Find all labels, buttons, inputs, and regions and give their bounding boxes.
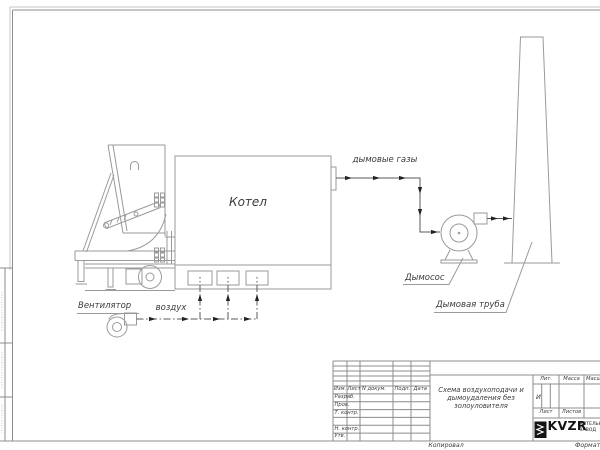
- boiler-label: Котел: [229, 196, 267, 208]
- doc-title-line-1: Схема воздухоподачи и: [438, 387, 524, 394]
- flue-outlet-stub: [331, 167, 336, 190]
- tb-sheets-label: Листов: [562, 410, 581, 415]
- tb-lit-value: И: [536, 394, 541, 401]
- boiler-body: [175, 156, 331, 265]
- air-label: воздух: [156, 304, 187, 313]
- flue-gas-line: [336, 176, 440, 234]
- tb-row-prov: Пров.: [335, 403, 350, 408]
- doc-title-line-3: золоуловителя: [454, 403, 508, 410]
- tb-row-utv: Утв.: [335, 434, 346, 439]
- tb-header-ndokum: N докум.: [362, 387, 386, 392]
- boiler: [175, 156, 336, 289]
- side-stamp: [0, 268, 13, 441]
- hopper-feeder: [75, 145, 175, 291]
- tb-mass-header: Масса: [563, 377, 580, 382]
- engineering-drawing: [0, 0, 600, 450]
- tb-sheet-label: Лист: [539, 410, 552, 415]
- tb-header-data: Дата: [414, 387, 427, 392]
- bolt-cluster-lower: [155, 248, 165, 262]
- fan-symbol: [77, 313, 139, 337]
- doc-title-line-2: дымоудаления без: [447, 395, 515, 402]
- chimney-label: Дымовая труба: [436, 301, 505, 310]
- hopper-vent-mark: [131, 162, 139, 171]
- company-logo-mark: [535, 422, 547, 439]
- logo-caption-line-1: КОТЕЛЬНЫЙ: [580, 423, 600, 428]
- fan-label: Вентилятор: [78, 302, 131, 311]
- tb-lit-header: Лит.: [540, 377, 552, 382]
- tb-scale-header: Масштаб: [586, 377, 600, 382]
- logo-caption-line-2: ЗАВОД: [580, 429, 596, 434]
- tb-row-tkontr: Т. контр.: [335, 411, 359, 416]
- tb-header-podp: Подп.: [395, 387, 411, 392]
- format-label: Формат: [575, 443, 600, 449]
- chimney-shape: [434, 37, 560, 313]
- drawing-frame: [0, 7, 600, 441]
- flue-gas-label: дымовые газы: [353, 156, 418, 165]
- tb-header-izm: Изм.: [334, 387, 346, 392]
- tb-header-list: Лист: [348, 387, 361, 392]
- tb-row-razrab: Разраб.: [335, 395, 355, 400]
- air-supply-line: [137, 277, 260, 321]
- exhauster-label: Дымосос: [405, 274, 445, 283]
- tb-row-nkontr: Н. контр.: [335, 427, 360, 432]
- copied-by-label: Копировал: [428, 443, 463, 449]
